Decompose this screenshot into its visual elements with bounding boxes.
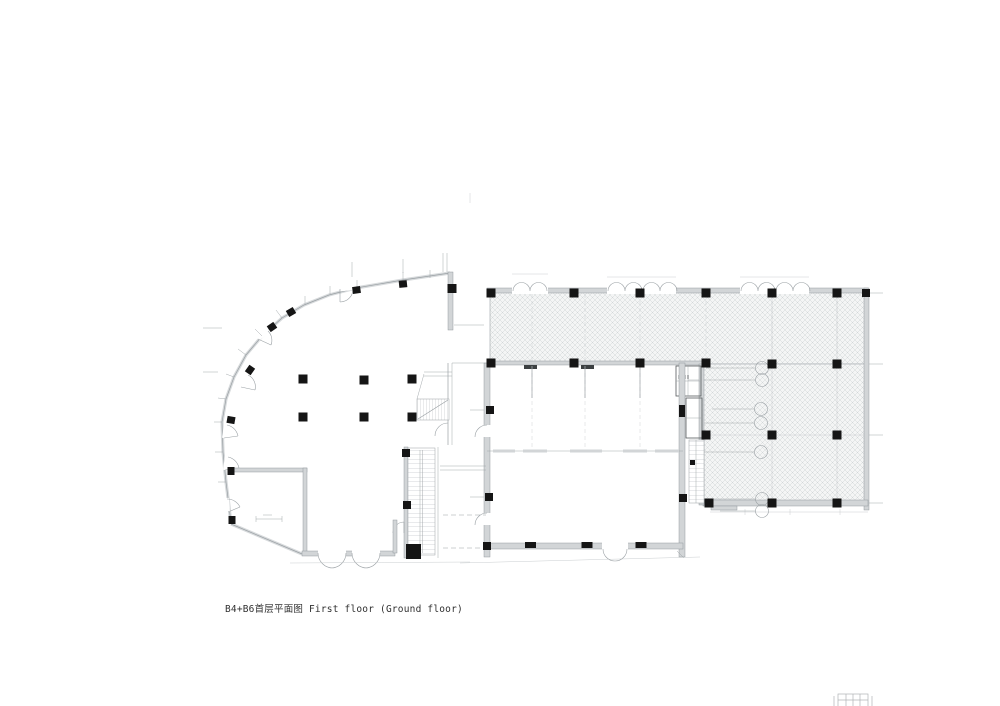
corner-room xyxy=(231,468,307,554)
left-wing xyxy=(203,253,470,568)
south-entrance xyxy=(290,520,470,568)
service-stair xyxy=(689,440,704,503)
drawing-caption: B4+B6首层平面图 First floor (Ground floor) xyxy=(225,601,463,615)
main-stair xyxy=(393,447,438,559)
floor-plan-drawing xyxy=(0,0,1000,706)
retail-strip-hatched xyxy=(487,274,868,369)
interior-columns xyxy=(299,375,417,422)
drawing-sheet: B4+B6首层平面图 First floor (Ground floor) xyxy=(0,0,1000,706)
curve-doors xyxy=(224,288,353,512)
escalator xyxy=(417,372,452,420)
title-block-fragment xyxy=(834,694,872,706)
